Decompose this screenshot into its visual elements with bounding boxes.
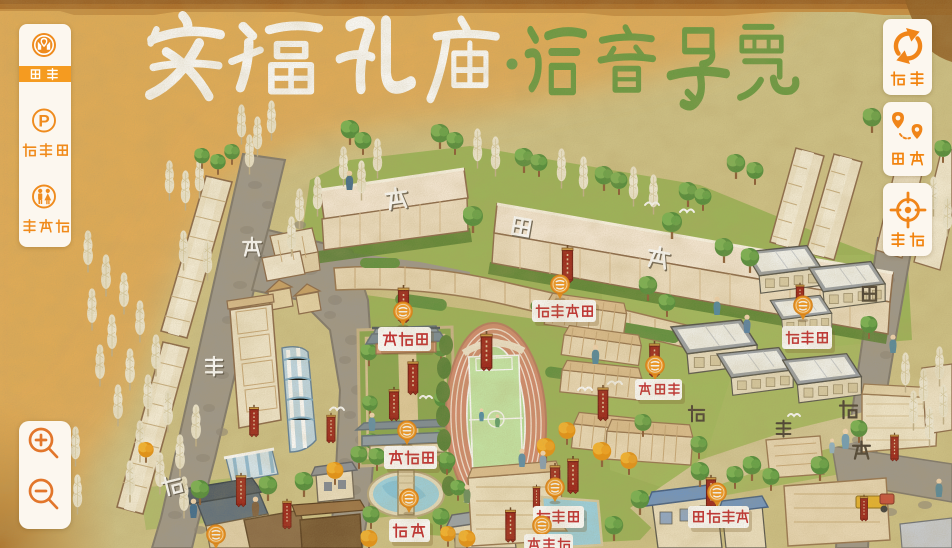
svg-text:P: P bbox=[38, 112, 49, 131]
